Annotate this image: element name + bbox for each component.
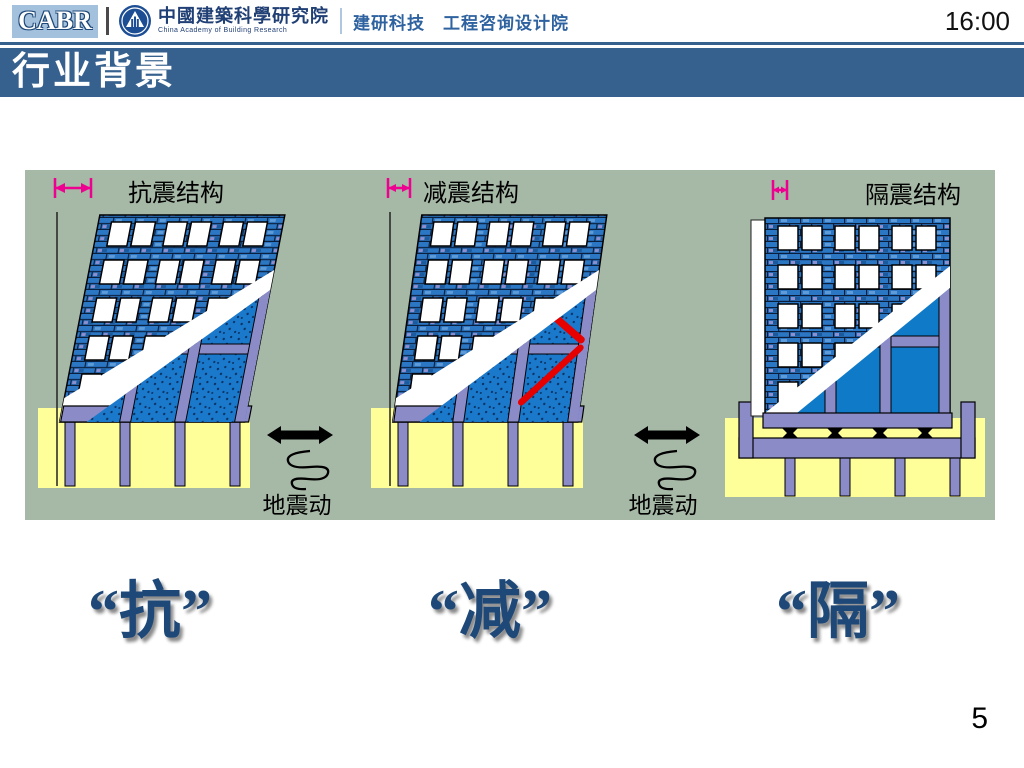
isolation-tray	[739, 438, 975, 458]
concept-kang: “抗”	[88, 560, 212, 650]
building-label: 减震结构	[423, 180, 519, 207]
header-bar: CABR 中國建築科學研究院 China Academy of Building…	[0, 0, 1024, 42]
slide: CABR 中國建築科學研究院 China Academy of Building…	[0, 0, 1024, 768]
header-divider-2	[340, 8, 342, 34]
org-name-zh: 中國建築科學研究院	[158, 7, 329, 26]
concept-jian: “减”	[428, 560, 552, 650]
clock: 16:00	[945, 6, 1010, 37]
cabr-logo-text: CABR	[18, 6, 92, 36]
cabr-emblem-icon	[118, 4, 152, 38]
header-divider	[106, 7, 109, 35]
ground-motion-label: 地震动	[263, 492, 332, 518]
cabr-logo: CABR	[12, 5, 98, 38]
ground-motion-label: 地震动	[629, 492, 698, 518]
building-base-isolated: 隔震结构	[725, 180, 985, 497]
building-label: 抗震结构	[128, 180, 224, 207]
division-name: 建研科技 工程咨询设计院	[353, 9, 569, 34]
org-name-block: 中國建築科學研究院 China Academy of Building Rese…	[158, 7, 329, 35]
concept-ge: “隔”	[776, 560, 900, 650]
header-rule	[0, 42, 1024, 45]
page-title: 行业背景	[0, 48, 1024, 97]
page-number: 5	[971, 702, 988, 736]
reference-line	[751, 220, 765, 416]
seismic-structures-diagram: 抗震结构 地震动	[25, 170, 995, 520]
title-bar: 行业背景	[0, 48, 1024, 97]
building-label: 隔震结构	[865, 182, 961, 209]
org-name-en: China Academy of Building Research	[158, 26, 329, 35]
